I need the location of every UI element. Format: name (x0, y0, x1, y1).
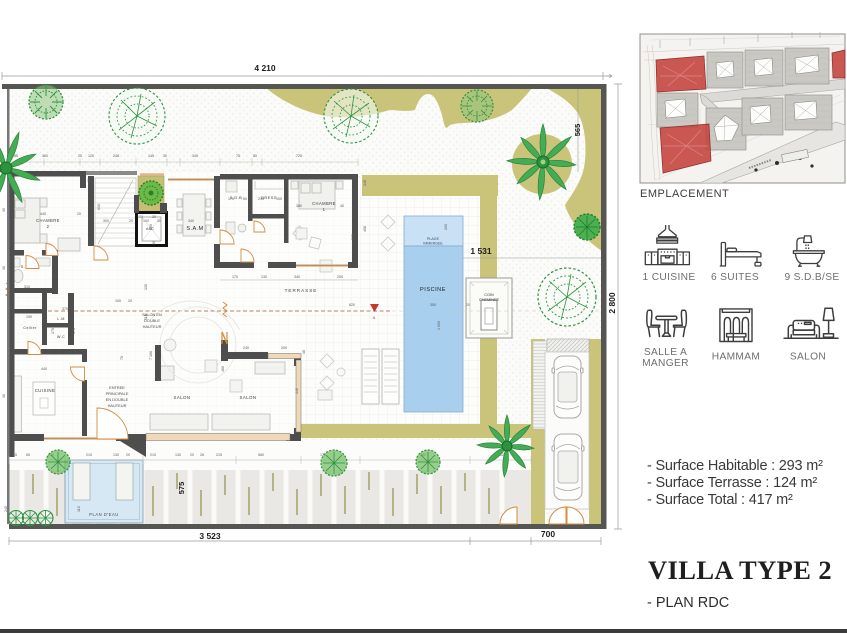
svg-text:IMMERGEE: IMMERGEE (423, 242, 443, 246)
svg-text:ENTREE: ENTREE (109, 385, 125, 390)
svg-text:HAMMAM: HAMMAM (712, 352, 761, 363)
svg-text:20: 20 (126, 453, 130, 457)
svg-text:SALON: SALON (240, 395, 257, 400)
svg-text:- Surface Terrasse : 124 m²: - Surface Terrasse : 124 m² (647, 475, 817, 491)
svg-text:W.C: W.C (57, 335, 65, 339)
svg-text:PRINCIPALE: PRINCIPALE (106, 391, 129, 396)
svg-text:1 531: 1 531 (470, 246, 492, 256)
svg-text:TERRASSE: TERRASSE (285, 288, 318, 293)
svg-text:525: 525 (351, 234, 355, 240)
svg-text:- PLAN RDC: - PLAN RDC (647, 595, 729, 611)
svg-text:200: 200 (444, 224, 448, 230)
svg-text:30: 30 (2, 266, 6, 270)
svg-text:248: 248 (113, 154, 119, 158)
svg-text:PLAGE: PLAGE (427, 237, 440, 241)
svg-text:200: 200 (337, 275, 343, 279)
svg-text:100: 100 (276, 197, 282, 201)
svg-text:360: 360 (42, 154, 48, 158)
svg-text:190: 190 (26, 315, 32, 319)
svg-text:VILLA TYPE 2: VILLA TYPE 2 (648, 555, 832, 585)
svg-text:EMPLACEMENT: EMPLACEMENT (640, 188, 729, 200)
svg-text:2: 2 (47, 224, 50, 229)
svg-text:6 SUITES: 6 SUITES (711, 272, 759, 283)
svg-text:3 523: 3 523 (199, 531, 221, 541)
svg-text:HAUTEUR: HAUTEUR (143, 324, 162, 329)
svg-text:20: 20 (77, 212, 81, 216)
svg-text:170: 170 (228, 197, 234, 201)
svg-text:130: 130 (144, 284, 148, 290)
svg-text:1: 1 (323, 207, 326, 212)
svg-text:90: 90 (243, 197, 247, 201)
svg-text:565: 565 (573, 124, 582, 137)
svg-text:100: 100 (143, 219, 149, 223)
svg-text:40: 40 (340, 204, 344, 208)
svg-text:HAUTEUR: HAUTEUR (108, 403, 127, 408)
svg-text:1 CUISINE: 1 CUISINE (643, 272, 696, 283)
svg-text:4 210: 4 210 (254, 63, 276, 73)
svg-text:440: 440 (40, 212, 46, 216)
svg-text:240: 240 (4, 506, 8, 512)
svg-text:65: 65 (14, 154, 18, 158)
svg-text:CHAMBRE: CHAMBRE (36, 218, 60, 223)
svg-text:20: 20 (128, 299, 132, 303)
svg-text:2 800: 2 800 (607, 292, 617, 314)
svg-text:210: 210 (258, 197, 264, 201)
svg-text:26: 26 (200, 453, 204, 457)
svg-text:Cellier: Cellier (23, 326, 37, 330)
svg-text:370: 370 (62, 307, 68, 311)
svg-text:- Surface Habitable : 293 m²: - Surface Habitable : 293 m² (647, 458, 823, 474)
svg-text:210: 210 (86, 453, 92, 457)
svg-text:170: 170 (232, 275, 238, 279)
svg-text:20: 20 (466, 303, 470, 307)
svg-text:20: 20 (216, 219, 220, 223)
svg-text:458: 458 (363, 226, 367, 232)
svg-text:COIN: COIN (484, 293, 494, 297)
svg-text:130: 130 (175, 453, 181, 457)
svg-text:160: 160 (149, 224, 153, 230)
svg-text:1 000: 1 000 (437, 321, 441, 330)
svg-text:120: 120 (88, 154, 94, 158)
svg-text:30: 30 (157, 219, 161, 223)
svg-text:110: 110 (77, 506, 81, 512)
svg-text:SALON: SALON (790, 352, 826, 363)
svg-text:110: 110 (144, 314, 148, 320)
svg-text:100: 100 (137, 215, 143, 219)
svg-text:340: 340 (188, 219, 194, 223)
svg-text:65: 65 (26, 453, 30, 457)
svg-text:240: 240 (243, 346, 249, 350)
svg-text:PLAN D'EAU: PLAN D'EAU (89, 512, 119, 517)
svg-text:130: 130 (261, 275, 267, 279)
svg-text:210: 210 (150, 453, 156, 457)
svg-text:340: 340 (294, 275, 300, 279)
svg-text:75: 75 (236, 154, 240, 158)
svg-text:300: 300 (103, 219, 109, 223)
svg-text:90: 90 (152, 241, 156, 245)
svg-text:SALON: SALON (174, 395, 191, 400)
svg-text:SALLE A: SALLE A (644, 347, 687, 358)
svg-text:725: 725 (296, 154, 302, 158)
svg-text:200: 200 (281, 346, 287, 350)
svg-text:340: 340 (192, 154, 198, 158)
svg-text:EN DOUBLE: EN DOUBLE (106, 397, 129, 402)
svg-text:440: 440 (295, 388, 299, 394)
svg-text:40: 40 (302, 350, 306, 354)
svg-text:A: A (373, 315, 376, 320)
svg-text:86: 86 (87, 178, 91, 182)
svg-text:350: 350 (430, 303, 436, 307)
svg-text:70: 70 (120, 356, 124, 360)
svg-text:30: 30 (2, 394, 6, 398)
svg-text:100: 100 (115, 299, 121, 303)
svg-text:30: 30 (2, 208, 6, 212)
svg-text:CHAMBRE: CHAMBRE (312, 201, 336, 206)
svg-text:440: 440 (41, 367, 47, 371)
svg-text:170: 170 (51, 328, 55, 334)
svg-text:700: 700 (541, 529, 555, 539)
svg-text:50: 50 (253, 154, 257, 158)
svg-text:620: 620 (349, 303, 355, 307)
svg-text:148: 148 (363, 180, 367, 186)
svg-text:460: 460 (221, 366, 225, 372)
svg-text:130: 130 (113, 453, 119, 457)
svg-text:PISCINE: PISCINE (420, 287, 446, 293)
svg-text:380: 380 (296, 204, 302, 208)
svg-text:- Surface Total : 417 m²: - Surface Total : 417 m² (647, 492, 793, 508)
svg-text:CHEMINEE: CHEMINEE (479, 298, 500, 302)
svg-text:145: 145 (148, 154, 154, 158)
svg-text:630: 630 (97, 204, 101, 210)
svg-text:560: 560 (258, 453, 264, 457)
svg-text:CUISINE: CUISINE (35, 388, 56, 393)
svg-text:30: 30 (152, 215, 156, 219)
svg-text:9 S.D.B/SE: 9 S.D.B/SE (784, 272, 839, 283)
svg-text:L.M: L.M (57, 317, 65, 321)
svg-text:45: 45 (13, 453, 17, 457)
svg-text:25: 25 (78, 154, 82, 158)
svg-text:MANGER: MANGER (642, 358, 689, 369)
svg-text:7 166: 7 166 (149, 351, 153, 360)
svg-text:20: 20 (129, 219, 133, 223)
svg-text:370: 370 (72, 328, 76, 334)
svg-text:20: 20 (190, 453, 194, 457)
svg-text:30: 30 (163, 154, 167, 158)
svg-text:575: 575 (177, 482, 186, 495)
svg-text:S.A.M: S.A.M (186, 226, 203, 232)
svg-text:215: 215 (216, 453, 222, 457)
